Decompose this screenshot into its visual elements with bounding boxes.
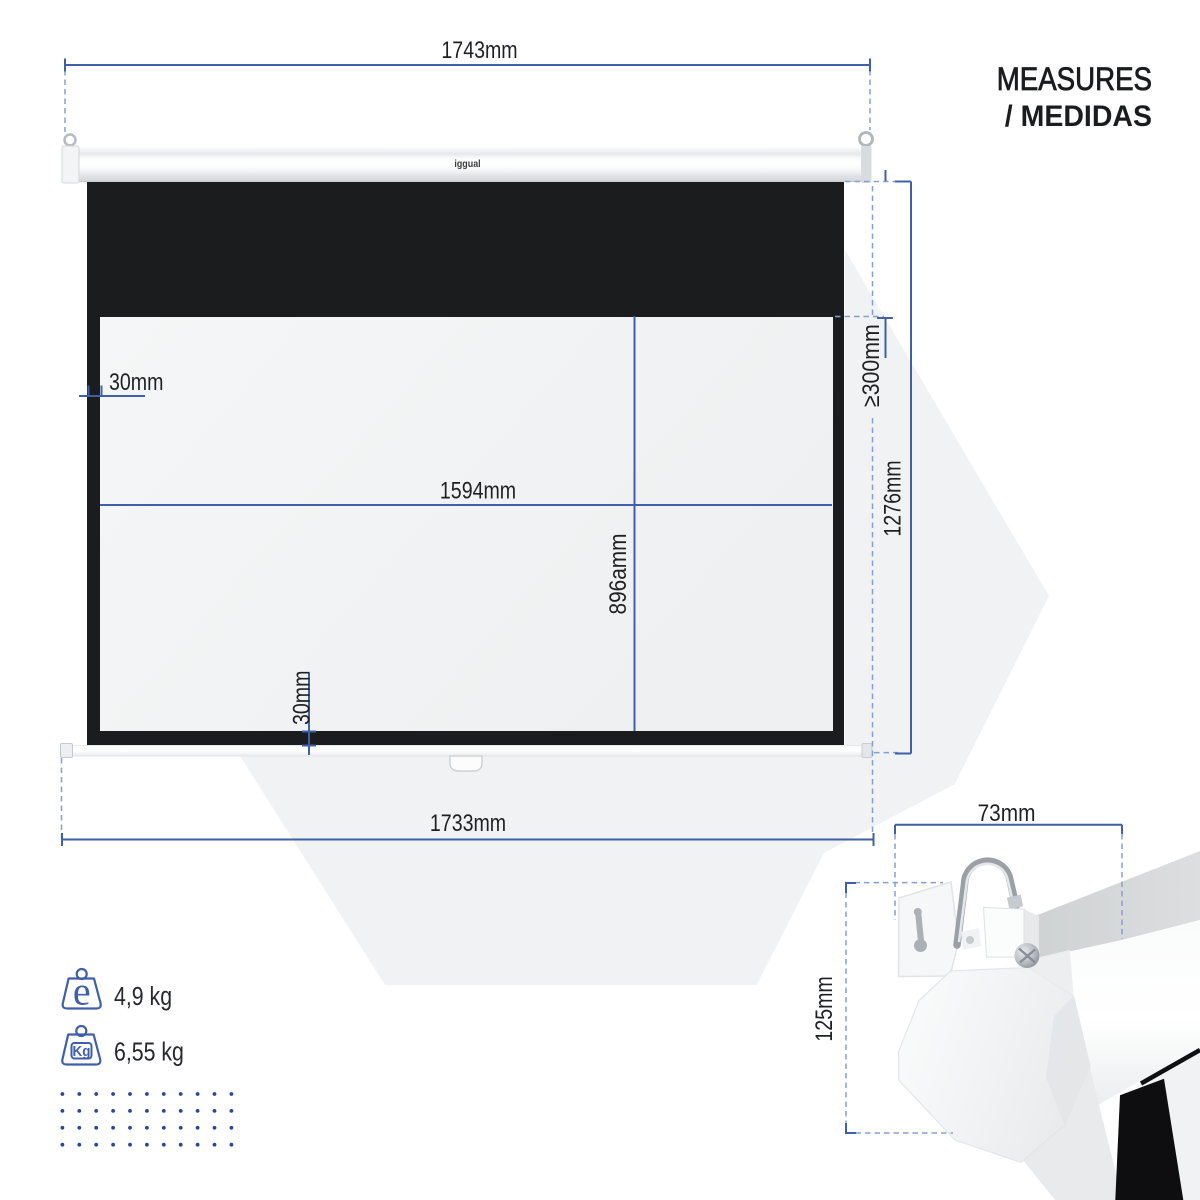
svg-text:4,9 kg: 4,9 kg [114,982,172,1012]
svg-text:73mm: 73mm [978,798,1036,826]
svg-text:6,55 kg: 6,55 kg [114,1038,184,1068]
svg-text:1743mm: 1743mm [441,36,517,64]
svg-text:/ MEDIDAS: / MEDIDAS [1005,100,1152,133]
svg-text:MEASURES: MEASURES [997,62,1152,97]
svg-text:30mm: 30mm [109,368,163,396]
svg-text:1276mm: 1276mm [878,460,906,536]
svg-text:Kg: Kg [73,1043,91,1060]
svg-text:e: e [73,969,91,1014]
svg-text:iggual: iggual [454,158,481,170]
svg-text:30mm: 30mm [287,671,315,725]
svg-text:≥300mm: ≥300mm [857,324,885,407]
svg-text:1733mm: 1733mm [430,809,506,837]
svg-text:896amm: 896amm [603,534,631,615]
svg-text:1594mm: 1594mm [440,477,516,505]
svg-text:125mm: 125mm [810,976,838,1041]
